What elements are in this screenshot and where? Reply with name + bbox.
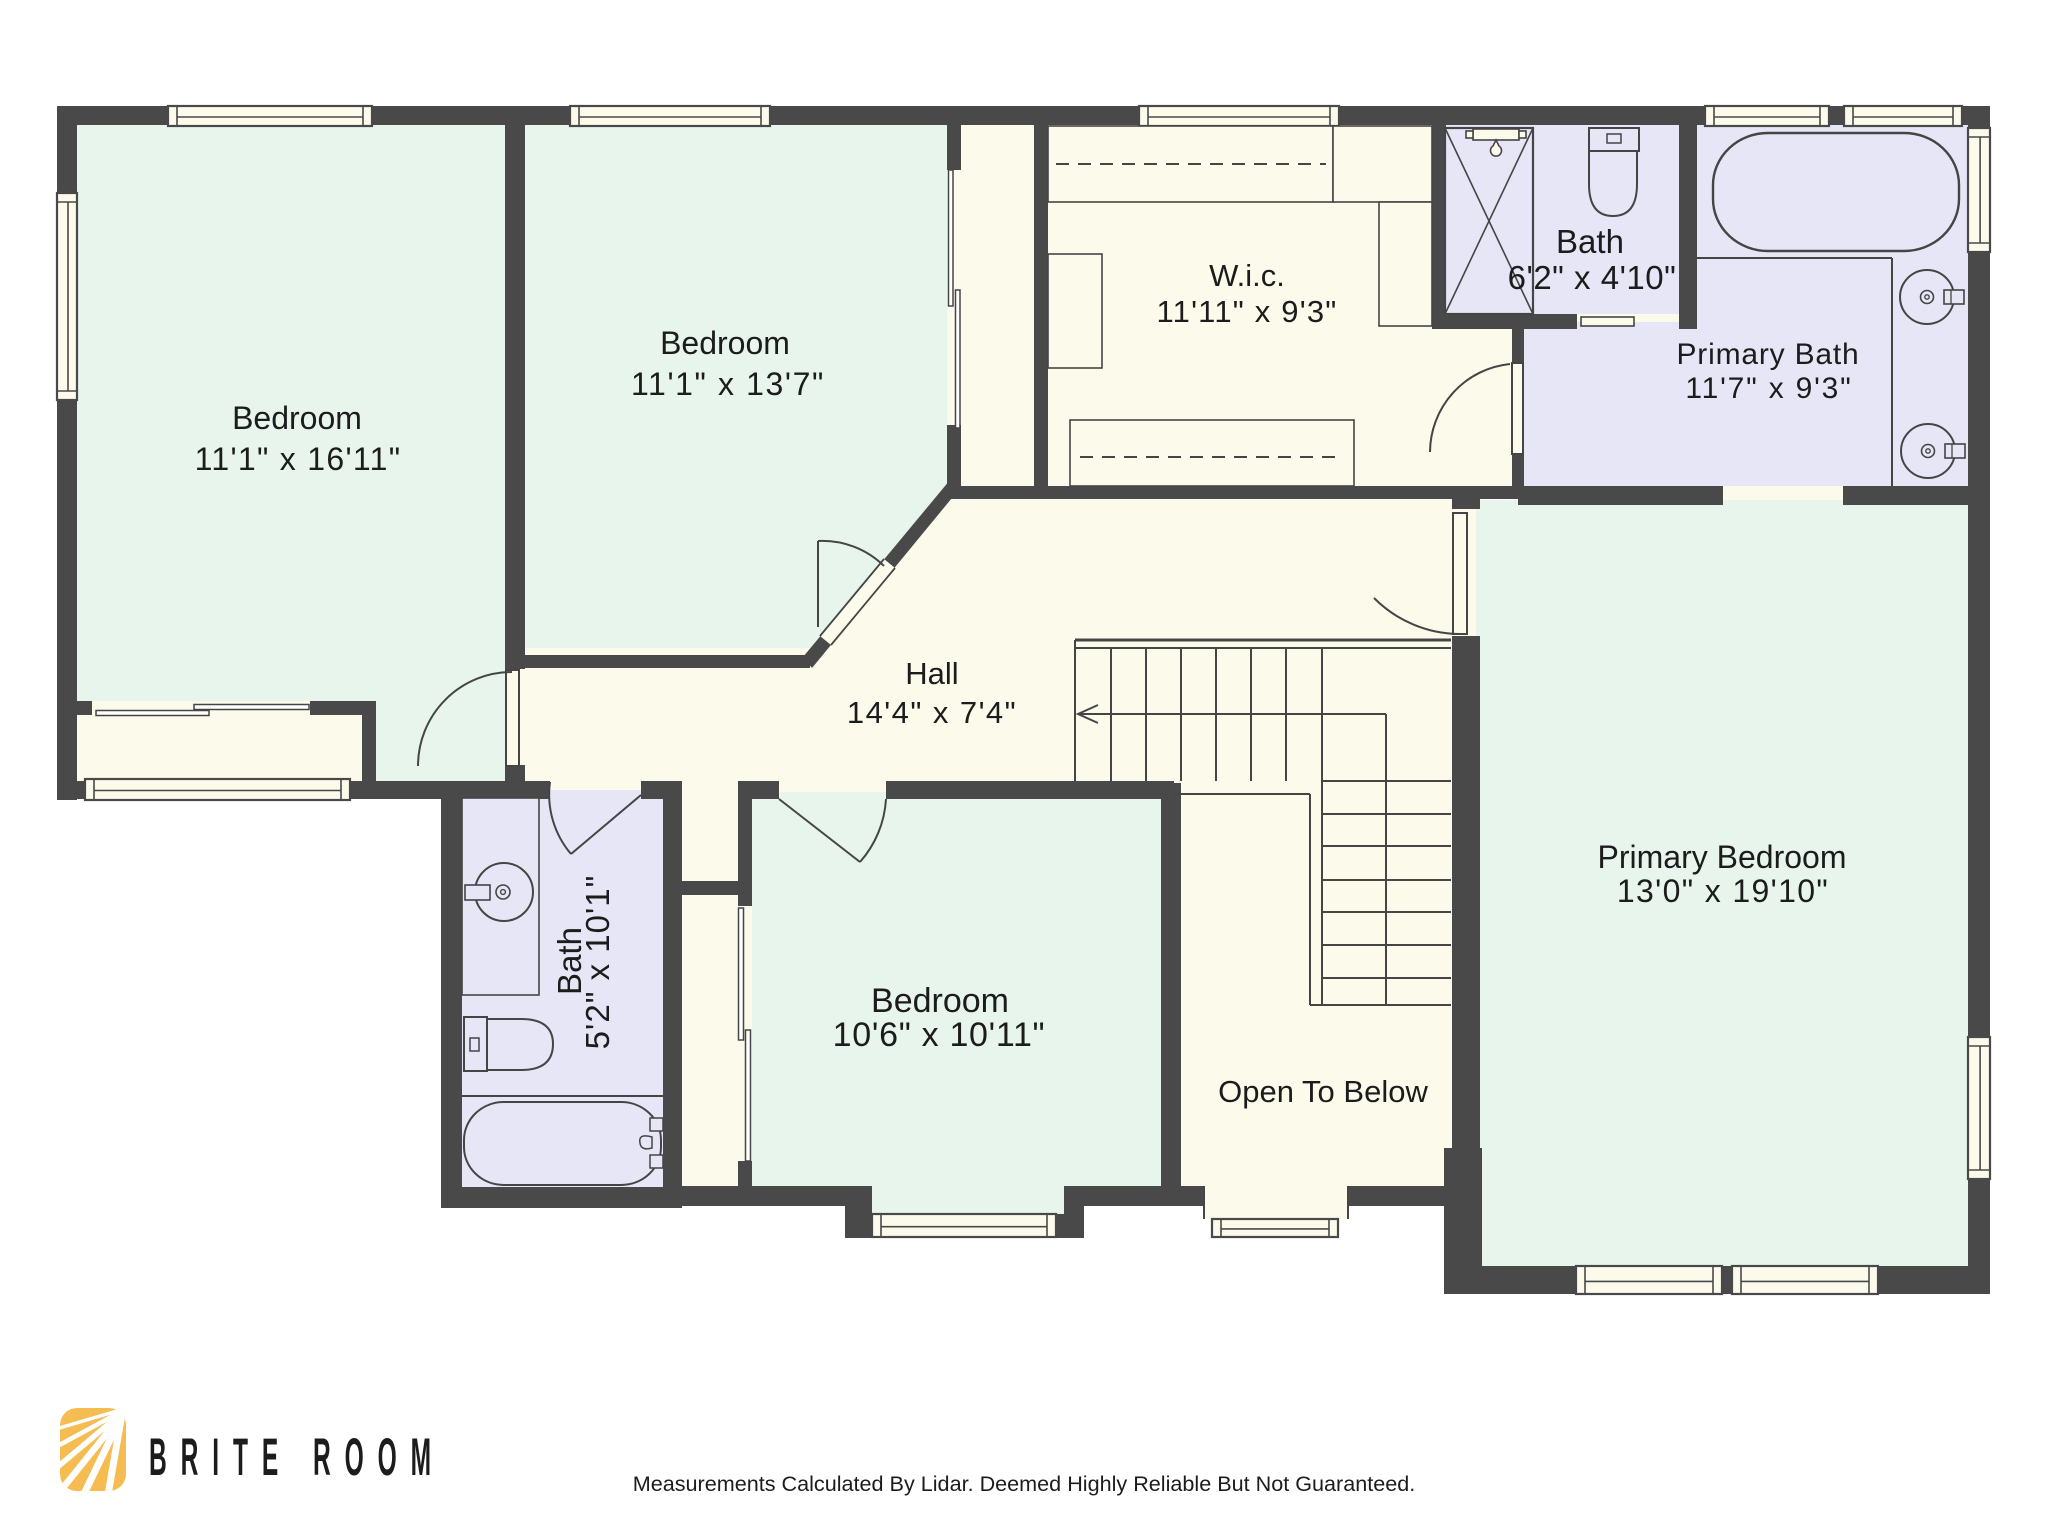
svg-text:Bedroom: Bedroom — [660, 325, 790, 361]
svg-text:Hall: Hall — [905, 656, 958, 691]
svg-text:14'4" x 7'4": 14'4" x 7'4" — [847, 695, 1017, 730]
svg-text:Open To Below: Open To Below — [1218, 1074, 1428, 1109]
svg-text:6'2" x 4'10": 6'2" x 4'10" — [1508, 259, 1677, 296]
svg-text:11'1" x 16'11": 11'1" x 16'11" — [195, 441, 402, 477]
svg-text:Bedroom: Bedroom — [871, 982, 1009, 1020]
svg-text:Measurements Calculated By Lid: Measurements Calculated By Lidar. Deemed… — [633, 1471, 1416, 1496]
svg-text:W.i.c.: W.i.c. — [1209, 258, 1285, 293]
svg-text:BRITE ROOM: BRITE ROOM — [149, 1428, 445, 1487]
svg-text:Primary Bedroom: Primary Bedroom — [1598, 839, 1847, 875]
svg-text:5'2" x 10'1": 5'2" x 10'1" — [579, 875, 616, 1050]
svg-text:13'0" x 19'10": 13'0" x 19'10" — [1617, 873, 1829, 909]
svg-text:11'1" x 13'7": 11'1" x 13'7" — [631, 366, 825, 402]
svg-text:Bath: Bath — [1556, 223, 1624, 260]
svg-text:11'7" x 9'3": 11'7" x 9'3" — [1685, 372, 1852, 405]
svg-text:Bedroom: Bedroom — [232, 400, 362, 436]
svg-text:Primary Bath: Primary Bath — [1677, 338, 1860, 371]
svg-text:11'11" x 9'3": 11'11" x 9'3" — [1156, 294, 1337, 329]
svg-text:10'6" x 10'11": 10'6" x 10'11" — [833, 1016, 1046, 1054]
